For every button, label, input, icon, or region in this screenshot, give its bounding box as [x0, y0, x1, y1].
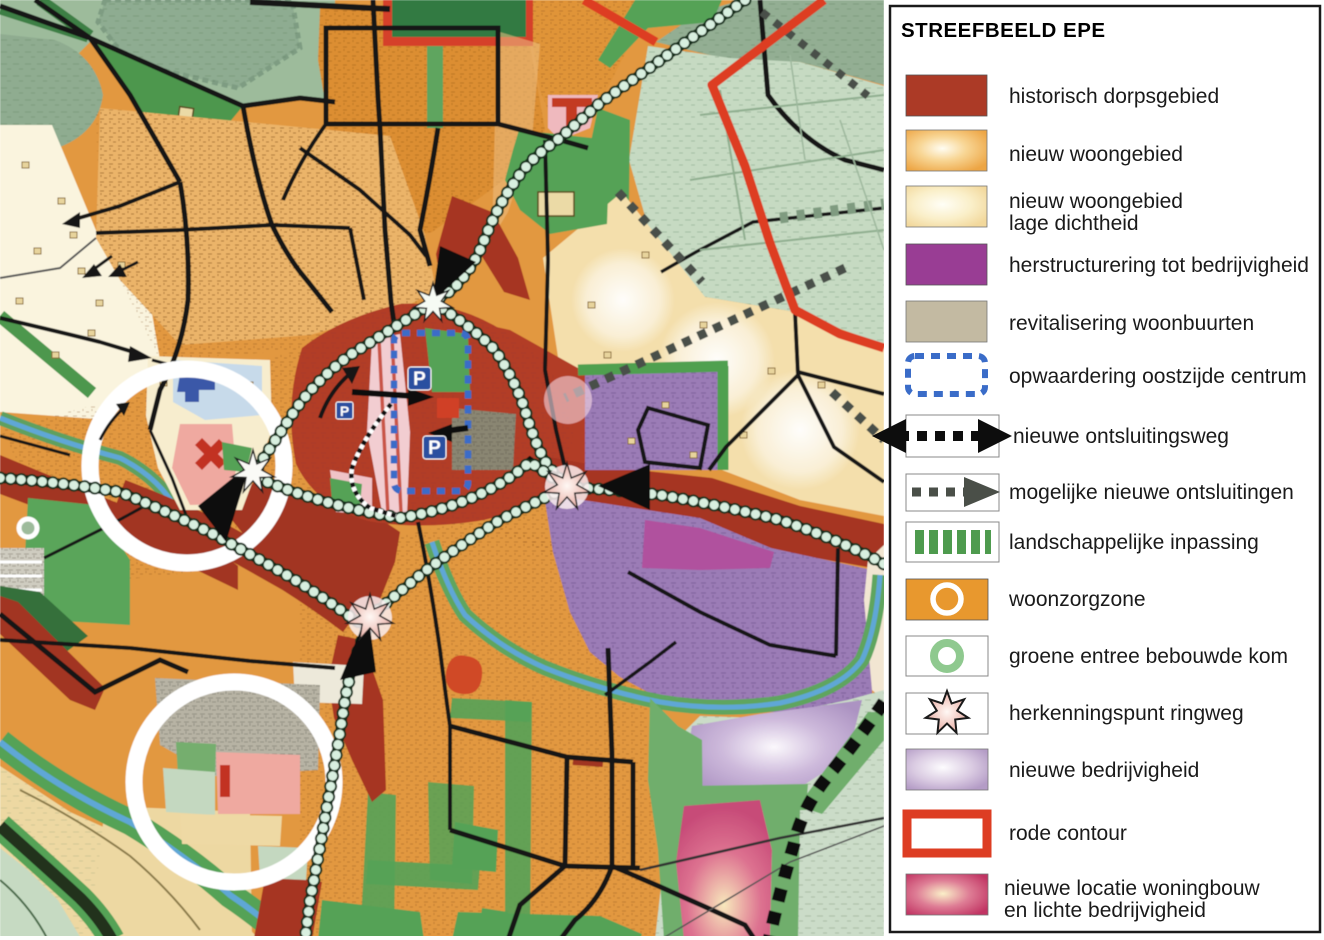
- svg-text:revitalisering woonbuurten: revitalisering woonbuurten: [1009, 312, 1254, 335]
- svg-text:P: P: [413, 369, 426, 390]
- svg-text:STREEFBEELD EPE: STREEFBEELD EPE: [901, 19, 1106, 42]
- svg-text:nieuwe ontsluitingsweg: nieuwe ontsluitingsweg: [1013, 425, 1229, 448]
- svg-text:rode contour: rode contour: [1009, 822, 1127, 845]
- svg-text:landschappelijke inpassing: landschappelijke inpassing: [1009, 531, 1259, 554]
- svg-text:herstructurering tot bedrijvig: herstructurering tot bedrijvigheid: [1009, 254, 1309, 277]
- svg-text:nieuwe locatie woningbouw: nieuwe locatie woningbouw: [1004, 877, 1261, 900]
- svg-text:herkenningspunt ringweg: herkenningspunt ringweg: [1009, 702, 1244, 725]
- svg-text:mogelijke nieuwe ontsluitingen: mogelijke nieuwe ontsluitingen: [1009, 481, 1294, 504]
- svg-text:nieuw woongebied: nieuw woongebied: [1009, 143, 1183, 166]
- svg-text:P: P: [428, 438, 441, 459]
- svg-text:groene entree bebouwde kom: groene entree bebouwde kom: [1009, 645, 1288, 668]
- svg-text:P: P: [340, 403, 349, 419]
- svg-text:historisch dorpsgebied: historisch dorpsgebied: [1009, 85, 1219, 108]
- svg-text:lage dichtheid: lage dichtheid: [1009, 212, 1139, 235]
- svg-text:nieuw woongebied: nieuw woongebied: [1009, 190, 1183, 213]
- svg-text:en lichte bedrijvigheid: en lichte bedrijvigheid: [1004, 899, 1206, 922]
- svg-text:nieuwe bedrijvigheid: nieuwe bedrijvigheid: [1009, 759, 1199, 782]
- svg-text:opwaardering oostzijde centrum: opwaardering oostzijde centrum: [1009, 365, 1307, 388]
- svg-text:woonzorgzone: woonzorgzone: [1008, 588, 1146, 611]
